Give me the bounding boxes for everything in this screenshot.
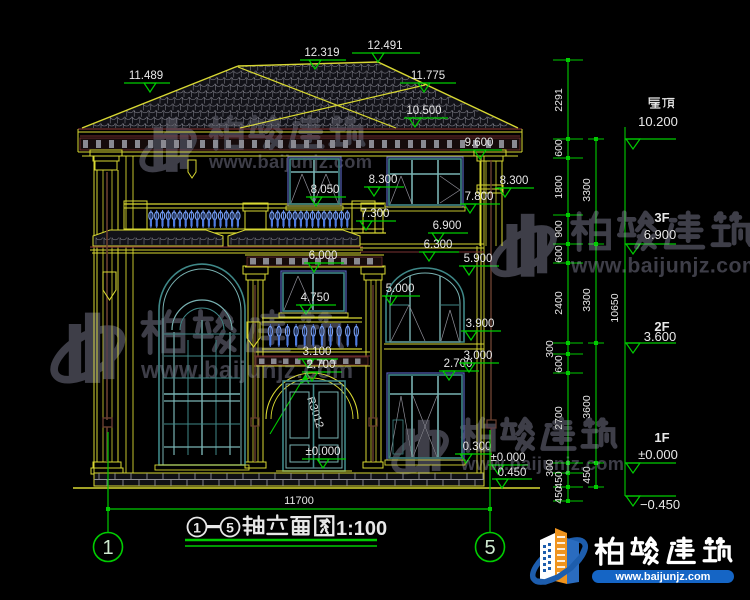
svg-text:1: 1 (193, 520, 201, 536)
svg-text:8.050: 8.050 (311, 184, 340, 196)
svg-text:5: 5 (484, 537, 495, 559)
svg-text:5.900: 5.900 (464, 253, 493, 265)
svg-text:7.800: 7.800 (465, 191, 494, 203)
svg-text:600: 600 (553, 245, 565, 263)
svg-text:450: 450 (553, 486, 565, 504)
svg-text:10.500: 10.500 (406, 105, 441, 117)
svg-text:12.319: 12.319 (304, 47, 339, 59)
svg-text:3.600: 3.600 (644, 329, 677, 344)
svg-text:6.900: 6.900 (433, 220, 462, 232)
svg-text:1F: 1F (654, 430, 669, 445)
svg-text:10650: 10650 (609, 293, 621, 322)
svg-text:4.750: 4.750 (301, 292, 330, 304)
svg-text:1: 1 (102, 537, 113, 559)
svg-text:600: 600 (553, 355, 565, 373)
svg-text:3F: 3F (654, 210, 669, 225)
svg-text:1800: 1800 (553, 175, 565, 199)
svg-text:±0.000: ±0.000 (305, 446, 340, 458)
svg-text:3.000: 3.000 (464, 350, 493, 362)
svg-text:600: 600 (553, 139, 565, 157)
svg-text:±0.000: ±0.000 (638, 447, 678, 462)
svg-text:3600: 3600 (581, 395, 593, 419)
svg-text:300: 300 (544, 340, 556, 358)
svg-text:9.600: 9.600 (465, 137, 494, 149)
svg-text:3.900: 3.900 (466, 318, 495, 330)
svg-text:11.489: 11.489 (129, 70, 163, 82)
svg-text:2400: 2400 (553, 291, 565, 315)
svg-text:8.300: 8.300 (500, 175, 529, 187)
svg-text:5.000: 5.000 (386, 283, 415, 295)
svg-text:11.775: 11.775 (411, 70, 445, 82)
svg-text:12.491: 12.491 (367, 40, 402, 52)
svg-text:5: 5 (226, 520, 234, 536)
svg-text:6.000: 6.000 (309, 250, 338, 262)
svg-text:10.200: 10.200 (638, 114, 678, 129)
svg-text:3300: 3300 (581, 288, 593, 312)
svg-text:3300: 3300 (581, 178, 593, 202)
svg-text:8.300: 8.300 (369, 174, 398, 186)
svg-text:1:100: 1:100 (336, 518, 387, 540)
svg-text:www.baijunjz.com: www.baijunjz.com (615, 571, 711, 583)
svg-text:7.300: 7.300 (361, 208, 390, 220)
svg-text:11700: 11700 (284, 495, 314, 507)
svg-text:−0.450: −0.450 (640, 497, 680, 512)
svg-text:6.300: 6.300 (424, 239, 453, 251)
svg-text:2291: 2291 (553, 88, 565, 112)
